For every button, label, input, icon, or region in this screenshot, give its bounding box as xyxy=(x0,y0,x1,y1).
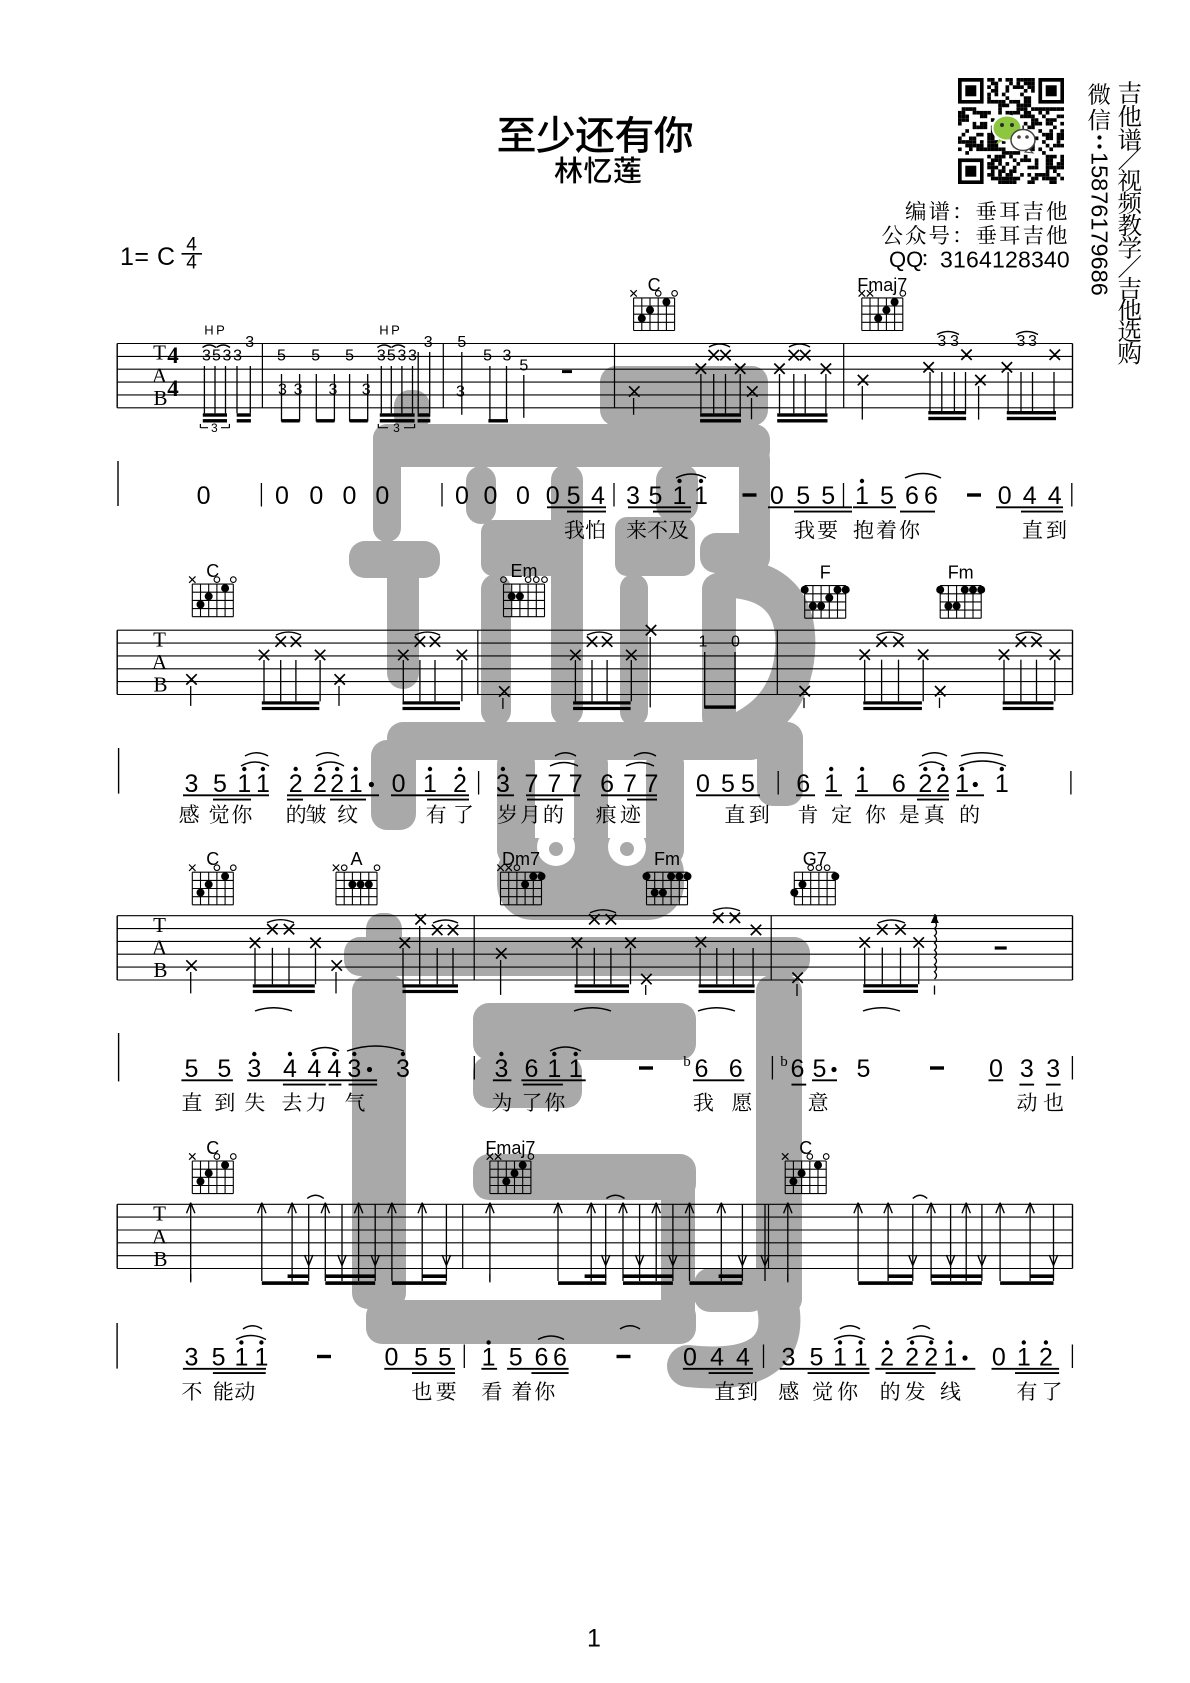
svg-text:3: 3 xyxy=(233,348,242,365)
svg-text:A: A xyxy=(152,650,168,674)
svg-text:0: 0 xyxy=(392,770,406,798)
svg-text:7: 7 xyxy=(569,770,583,798)
svg-text:0: 0 xyxy=(455,482,469,510)
svg-text:T: T xyxy=(153,1202,166,1226)
svg-text:15876179686: 15876179686 xyxy=(1087,152,1113,296)
svg-text:0: 0 xyxy=(483,482,497,510)
svg-text:5: 5 xyxy=(217,1055,231,1083)
svg-text:3: 3 xyxy=(456,384,465,401)
svg-text:5: 5 xyxy=(277,348,286,365)
svg-text:0: 0 xyxy=(683,1344,697,1372)
svg-text:1: 1 xyxy=(482,1344,496,1372)
svg-text:H: H xyxy=(379,323,388,338)
svg-text:1: 1 xyxy=(547,1055,561,1083)
svg-text:5: 5 xyxy=(457,334,466,351)
svg-text:5: 5 xyxy=(857,1055,871,1083)
svg-text:5: 5 xyxy=(184,1055,198,1083)
svg-text:1: 1 xyxy=(673,482,687,510)
svg-text:5: 5 xyxy=(721,770,735,798)
svg-text:6: 6 xyxy=(924,482,938,510)
svg-text:5: 5 xyxy=(212,348,221,365)
svg-text:1: 1 xyxy=(423,770,437,798)
svg-text:1: 1 xyxy=(855,482,869,510)
svg-text:5: 5 xyxy=(880,482,894,510)
svg-text:0: 0 xyxy=(309,482,323,510)
svg-text:4: 4 xyxy=(186,253,197,274)
svg-text:C: C xyxy=(206,1138,219,1158)
svg-text:6: 6 xyxy=(694,1055,708,1083)
svg-text:C: C xyxy=(648,275,661,295)
svg-text:1: 1 xyxy=(694,482,708,510)
svg-text:4: 4 xyxy=(1023,482,1037,510)
svg-text:3: 3 xyxy=(937,333,946,350)
svg-text:C: C xyxy=(206,561,219,581)
svg-text:3: 3 xyxy=(328,382,337,399)
svg-text:5: 5 xyxy=(821,482,835,510)
svg-text:4: 4 xyxy=(1048,482,1062,510)
svg-text:6: 6 xyxy=(892,770,906,798)
svg-text:5: 5 xyxy=(567,482,581,510)
svg-text:3: 3 xyxy=(245,334,254,351)
svg-text:3: 3 xyxy=(202,348,211,365)
svg-text:5: 5 xyxy=(414,1344,428,1372)
svg-text:1: 1 xyxy=(824,770,838,798)
svg-text:B: B xyxy=(153,386,167,410)
svg-text:3: 3 xyxy=(1017,333,1026,350)
svg-text:T: T xyxy=(153,341,166,365)
svg-text:3: 3 xyxy=(408,348,417,365)
svg-text:A: A xyxy=(152,364,168,388)
svg-text:1= C: 1= C xyxy=(120,243,176,271)
svg-text:0: 0 xyxy=(375,482,389,510)
svg-text:3: 3 xyxy=(1020,1055,1034,1083)
svg-text:3: 3 xyxy=(211,421,218,435)
svg-text:0: 0 xyxy=(197,482,211,510)
svg-text:1: 1 xyxy=(995,770,1009,798)
svg-text:3: 3 xyxy=(1028,333,1037,350)
svg-text:2: 2 xyxy=(313,770,327,798)
svg-text:1: 1 xyxy=(234,1344,248,1372)
svg-text:7: 7 xyxy=(547,770,561,798)
svg-text:3: 3 xyxy=(626,482,640,510)
svg-text:3: 3 xyxy=(503,348,512,365)
svg-text:3: 3 xyxy=(347,1055,361,1083)
svg-text:Fm: Fm xyxy=(948,563,974,583)
svg-text:3: 3 xyxy=(782,1344,796,1372)
svg-text:1: 1 xyxy=(237,770,251,798)
svg-text:4: 4 xyxy=(283,1055,297,1083)
svg-text:0: 0 xyxy=(998,482,1012,510)
svg-text:5: 5 xyxy=(212,1344,226,1372)
svg-text:5: 5 xyxy=(483,348,492,365)
svg-text:4: 4 xyxy=(327,1055,341,1083)
svg-text:0: 0 xyxy=(696,770,710,798)
svg-text:3: 3 xyxy=(184,770,198,798)
svg-text:C: C xyxy=(799,1138,812,1158)
svg-text:T: T xyxy=(153,913,166,937)
svg-text:0: 0 xyxy=(546,482,560,510)
svg-text:3: 3 xyxy=(496,770,510,798)
svg-text:3: 3 xyxy=(294,382,303,399)
svg-text:B: B xyxy=(153,958,167,982)
svg-text:5: 5 xyxy=(796,482,810,510)
svg-text:4: 4 xyxy=(167,376,179,401)
svg-text:2: 2 xyxy=(918,770,932,798)
svg-text:7: 7 xyxy=(524,770,538,798)
svg-text:H: H xyxy=(204,323,213,338)
svg-text:P: P xyxy=(391,323,400,338)
svg-text:F: F xyxy=(820,563,831,583)
svg-text:P: P xyxy=(216,323,225,338)
svg-text:0: 0 xyxy=(384,1344,398,1372)
svg-text:2: 2 xyxy=(289,770,303,798)
svg-text:0: 0 xyxy=(989,1055,1003,1083)
svg-text:6: 6 xyxy=(729,1055,743,1083)
svg-text:4: 4 xyxy=(710,1344,724,1372)
svg-text:6: 6 xyxy=(790,1055,804,1083)
svg-text:5: 5 xyxy=(311,348,320,365)
svg-text:A: A xyxy=(350,849,362,869)
svg-text:2: 2 xyxy=(880,1344,894,1372)
svg-text:0: 0 xyxy=(992,1344,1006,1372)
svg-text:5: 5 xyxy=(649,482,663,510)
svg-text:7: 7 xyxy=(644,770,658,798)
svg-text:3: 3 xyxy=(494,1055,508,1083)
svg-text:6: 6 xyxy=(553,1344,567,1372)
svg-text:3: 3 xyxy=(397,348,406,365)
svg-text:6: 6 xyxy=(796,770,810,798)
svg-text:6: 6 xyxy=(905,482,919,510)
svg-text:5: 5 xyxy=(345,348,354,365)
svg-text:3: 3 xyxy=(1046,1055,1060,1083)
svg-text:7: 7 xyxy=(623,770,637,798)
svg-text:4: 4 xyxy=(167,343,179,368)
svg-text:A: A xyxy=(152,936,168,960)
svg-text:3: 3 xyxy=(950,333,959,350)
svg-text:1: 1 xyxy=(349,770,363,798)
svg-text:5: 5 xyxy=(213,770,227,798)
svg-text:1: 1 xyxy=(1017,1344,1031,1372)
svg-text:6: 6 xyxy=(534,1344,548,1372)
svg-text:T: T xyxy=(153,627,166,651)
svg-text:3: 3 xyxy=(247,1055,261,1083)
svg-text:6: 6 xyxy=(600,770,614,798)
svg-text:5: 5 xyxy=(810,1344,824,1372)
svg-text:1: 1 xyxy=(256,770,270,798)
svg-text:1: 1 xyxy=(833,1344,847,1372)
svg-text:0: 0 xyxy=(731,634,740,651)
svg-text:C: C xyxy=(206,849,219,869)
svg-text:5: 5 xyxy=(519,358,528,375)
svg-text:0: 0 xyxy=(770,482,784,510)
svg-text:B: B xyxy=(153,673,167,697)
svg-text:2: 2 xyxy=(924,1344,938,1372)
svg-text:3: 3 xyxy=(184,1344,198,1372)
svg-text:2: 2 xyxy=(936,770,950,798)
svg-text:4: 4 xyxy=(736,1344,750,1372)
svg-text:1: 1 xyxy=(854,1344,868,1372)
svg-text:b: b xyxy=(683,1054,691,1070)
svg-text:2: 2 xyxy=(1039,1344,1053,1372)
svg-text:0: 0 xyxy=(275,482,289,510)
svg-text:0: 0 xyxy=(516,482,530,510)
svg-text:4: 4 xyxy=(307,1055,321,1083)
svg-text:0: 0 xyxy=(342,482,356,510)
svg-text:1: 1 xyxy=(699,634,708,651)
svg-text:2: 2 xyxy=(330,770,344,798)
svg-text:2: 2 xyxy=(453,770,467,798)
svg-text:1: 1 xyxy=(955,770,969,798)
svg-text:1: 1 xyxy=(254,1344,268,1372)
svg-text:5: 5 xyxy=(438,1344,452,1372)
svg-text:5: 5 xyxy=(387,348,396,365)
svg-text:3164128340: 3164128340 xyxy=(940,247,1070,273)
svg-text:1: 1 xyxy=(587,1625,601,1653)
svg-text:3: 3 xyxy=(393,421,400,435)
svg-text:G7: G7 xyxy=(803,849,827,869)
svg-text:B: B xyxy=(153,1247,167,1271)
svg-text:1: 1 xyxy=(943,1344,957,1372)
svg-text:6: 6 xyxy=(524,1055,538,1083)
svg-text:1: 1 xyxy=(569,1055,583,1083)
svg-text:1: 1 xyxy=(855,770,869,798)
svg-text:5: 5 xyxy=(812,1055,826,1083)
svg-text:3: 3 xyxy=(396,1055,410,1083)
svg-text:2: 2 xyxy=(905,1344,919,1372)
svg-text:3: 3 xyxy=(223,348,232,365)
svg-text:5: 5 xyxy=(741,770,755,798)
svg-text:3: 3 xyxy=(377,348,386,365)
svg-text:5: 5 xyxy=(509,1344,523,1372)
svg-text:3: 3 xyxy=(424,334,433,351)
svg-text:A: A xyxy=(152,1224,168,1248)
svg-text:QQ: QQ xyxy=(889,247,923,272)
svg-text:3: 3 xyxy=(362,382,371,399)
svg-text:3: 3 xyxy=(278,382,287,399)
svg-text:4: 4 xyxy=(591,482,605,510)
svg-text:Fm: Fm xyxy=(654,849,680,869)
svg-text:b: b xyxy=(780,1054,788,1070)
